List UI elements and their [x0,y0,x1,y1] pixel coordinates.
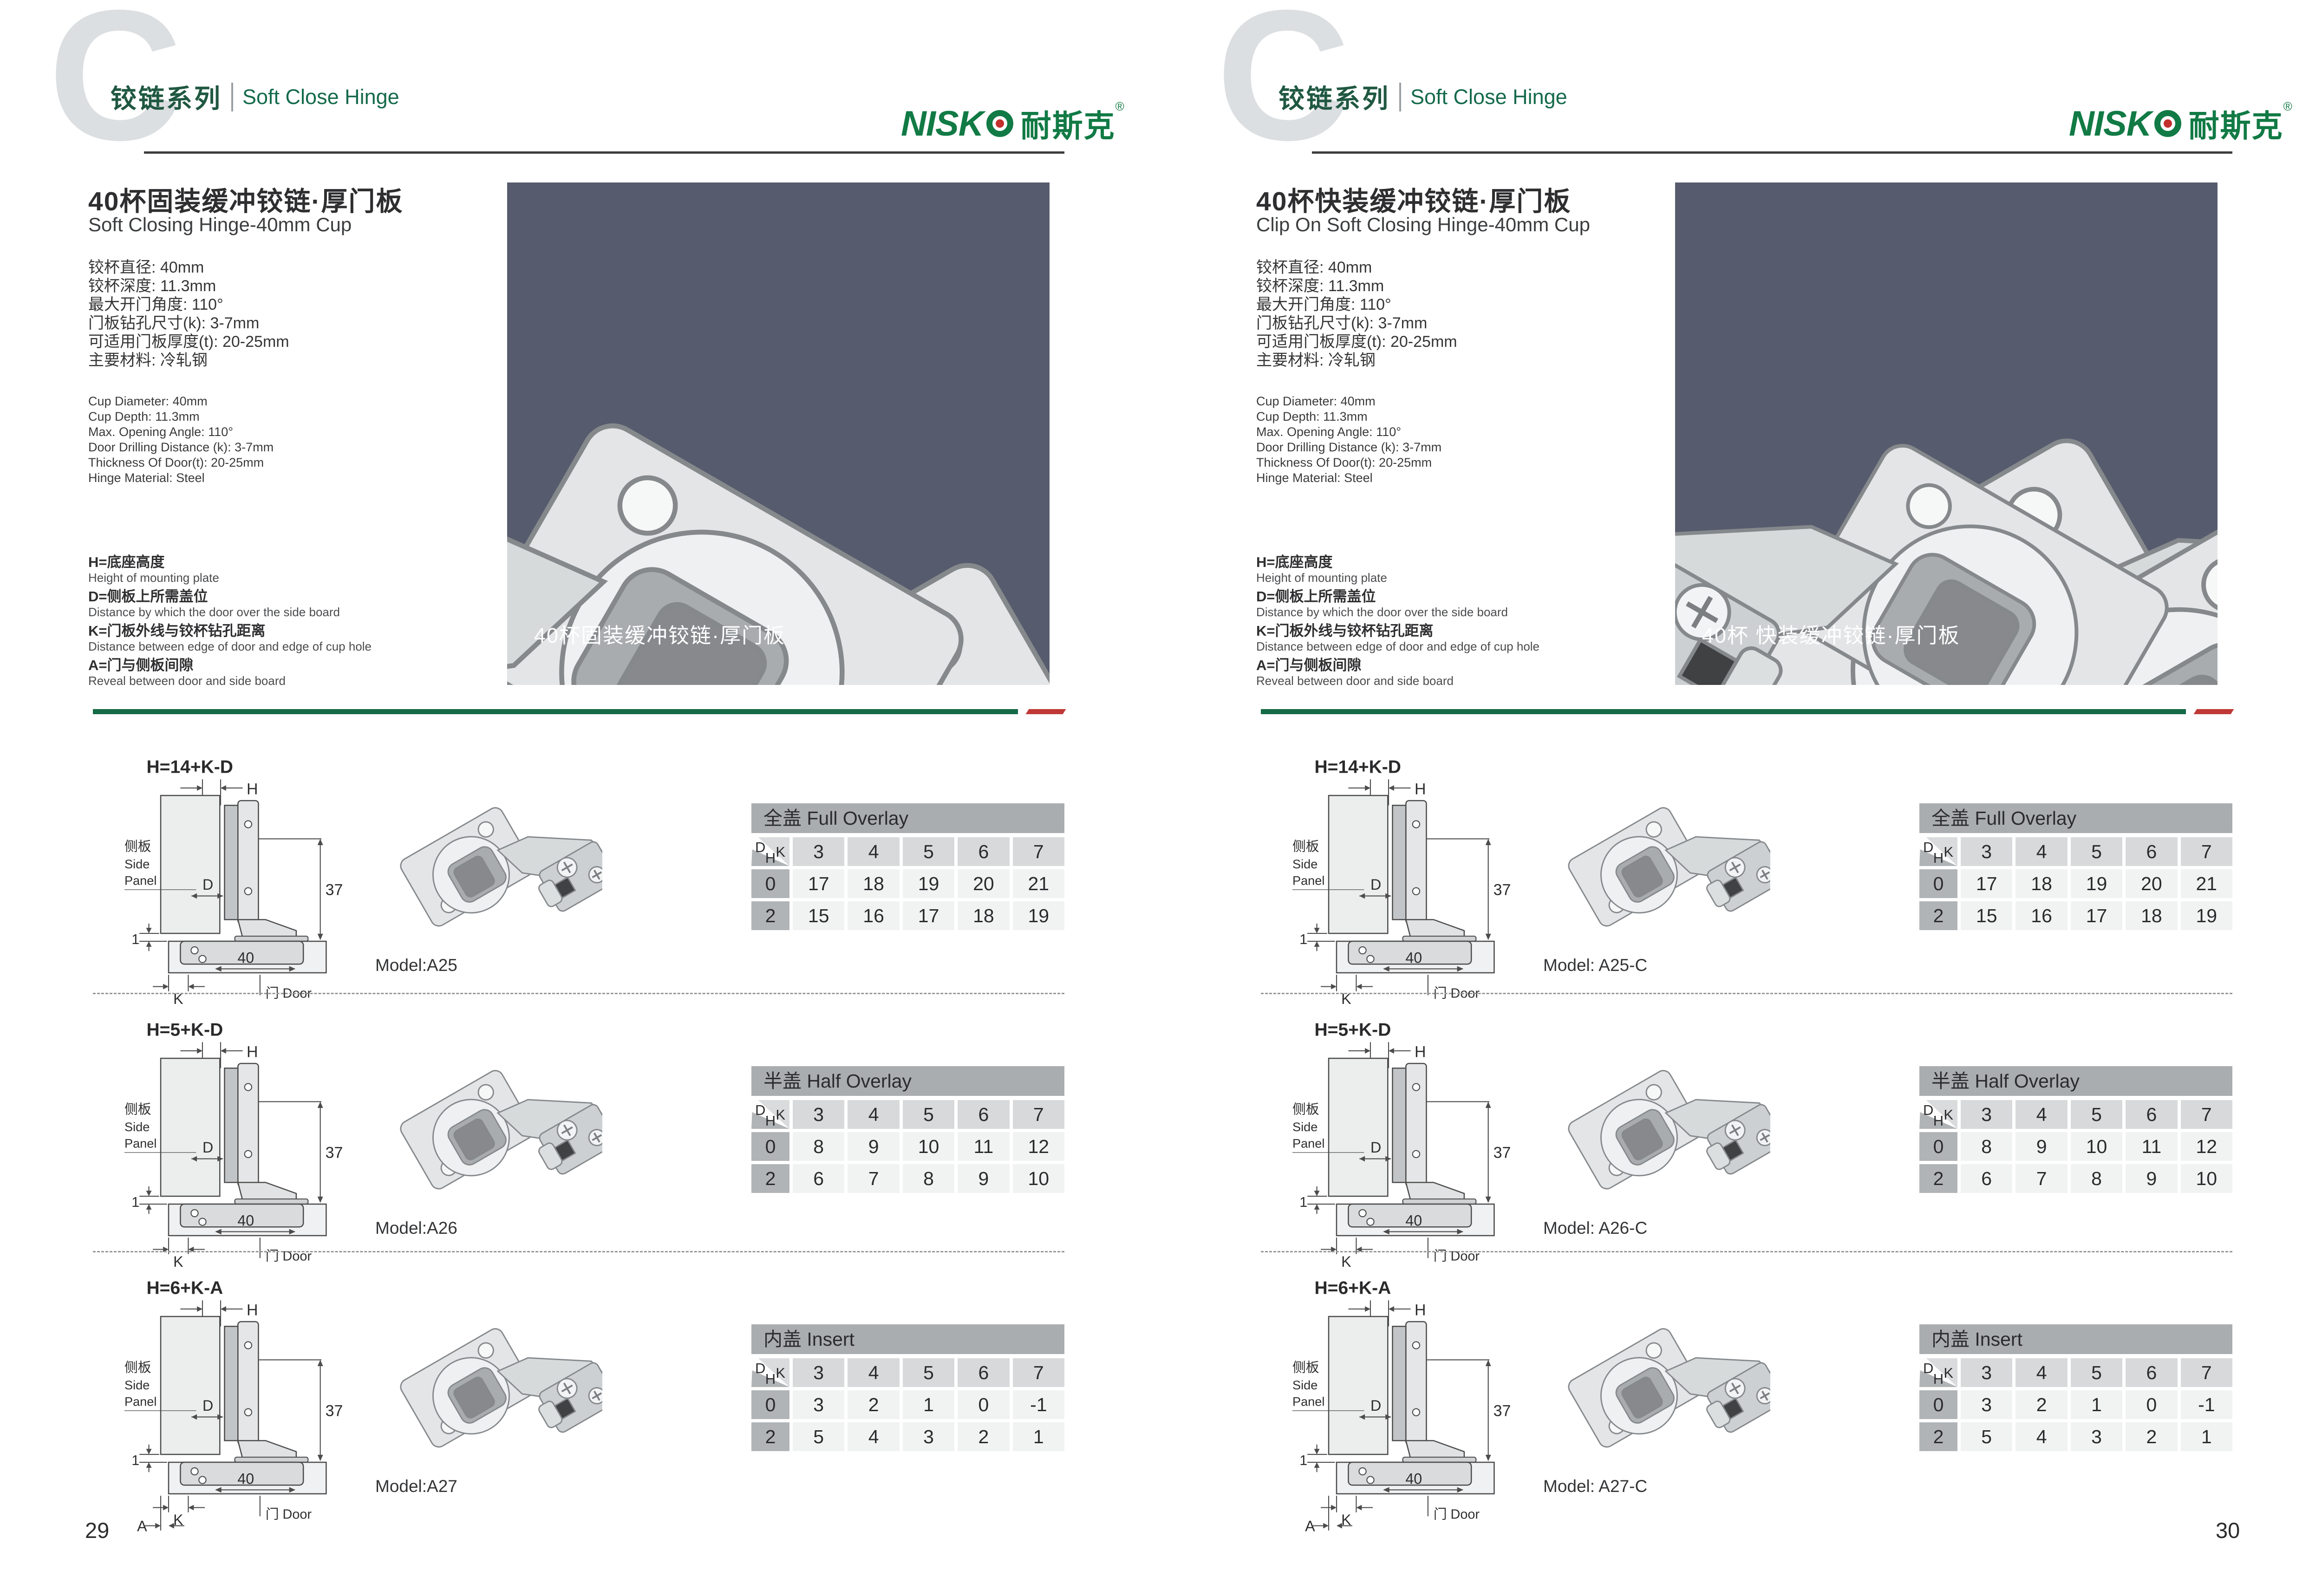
table-k-header: 3 [1961,1100,2012,1129]
table-value-cell: 8 [1961,1132,2012,1161]
overlay-section-insert: H=6+K-A Model:A27 内盖 InsertDKH3456703210… [0,1273,1168,1533]
table-value-cell: 3 [793,1390,844,1419]
hinge-photo-illustration [1675,182,2218,685]
section-divider-accent [2194,709,2234,714]
table-value-cell: 3 [903,1422,954,1451]
spec-line: 门板钻孔尺寸(k): 3-7mm [1256,314,1457,332]
definition-en: Height of mounting plate [1256,571,1539,585]
product-photo: 40杯固装缓冲铰链·厚门板 [507,182,1050,685]
spec-line: Cup Diameter: 40mm [1256,394,1441,409]
table-value-cell: 8 [903,1164,954,1193]
hinge-thumbnail [385,1282,607,1472]
definition-en: Reveal between door and side board [88,674,372,688]
table-k-header: 6 [958,1358,1009,1387]
table-k-header: 5 [2071,1100,2122,1129]
diagram-formula: H=14+K-D [146,757,233,777]
spec-line: 主要材料: 冷轧钢 [88,351,289,370]
series-title-cn: 铰链系列 [1278,78,1390,116]
overlay-section-insert: H=6+K-A Model: A27-C 内盖 InsertDKH3456703… [1168,1273,2322,1533]
series-header: 铰链系列 Soft Close Hinge [111,78,399,116]
table-h-header: 0 [1919,1390,1957,1419]
table-k-header: 7 [2181,1358,2232,1387]
table-value-cell: 7 [2015,1164,2067,1193]
table-value-cell: 17 [903,901,954,930]
table-value-cell: 17 [793,869,844,898]
specs-cn: 铰杯直径: 40mm 铰杯深度: 11.3mm 最大开门角度: 110° 门板钻… [1256,258,1457,370]
table-k-header: 5 [903,1358,954,1387]
definition-en: Distance between edge of door and edge o… [88,639,372,654]
brand-logo: NISK 耐斯克 ® [2069,101,2292,146]
table-value-cell: 5 [1961,1422,2012,1451]
spec-line: 可适用门板厚度(t): 20-25mm [1256,332,1457,351]
spec-line: 铰杯深度: 11.3mm [1256,277,1457,295]
table-k-header: 6 [2126,1100,2177,1129]
overlay-section-half: H=5+K-D Model:A26 半盖 Half OverlayDKH3456… [0,1015,1168,1275]
definition-cn: K=门板外线与铰杯钻孔距离 [88,622,372,639]
overlay-section-half: H=5+K-D Model: A26-C 半盖 Half OverlayDKH3… [1168,1015,2322,1275]
definition-en: Distance between edge of door and edge o… [1256,639,1539,654]
table-corner-cell: DKH [751,1100,789,1129]
diagram-formula: H=6+K-A [1314,1278,1391,1298]
overlay-table-insert: 内盖 InsertDKH3456703210-1254321 [1919,1324,2232,1451]
table-value-cell: 6 [793,1164,844,1193]
table-value-cell: 12 [1013,1132,1064,1161]
product-title-en: Soft Closing Hinge-40mm Cup [88,214,352,236]
installation-diagram: H=6+K-A [1269,1275,1534,1535]
overlay-table-half: 半盖 Half OverlayDKH345670891011122678910 [1919,1066,2232,1193]
installation-diagram: H=14+K-D [1269,754,1534,1014]
table-value-cell: 1 [2071,1390,2122,1419]
page-29: C 铰链系列 Soft Close Hinge NISK 耐斯克 ® 40杯固装… [0,0,1168,1596]
table-h-header: 0 [1919,869,1957,898]
definition-en: Distance by which the door over the side… [1256,605,1539,619]
table-k-header: 7 [2181,1100,2232,1129]
dashed-separator [1261,993,2232,994]
table-corner-cell: DKH [1919,1358,1957,1387]
hinge-thumbnail [1552,761,1775,951]
table-title: 半盖 Half Overlay [751,1066,1064,1096]
table-value-cell: 9 [958,1164,1009,1193]
table-value-cell: 4 [2015,1422,2067,1451]
series-header: 铰链系列 Soft Close Hinge [1278,78,1567,116]
product-title-en: Clip On Soft Closing Hinge-40mm Cup [1256,214,1590,236]
spec-line: Thickness Of Door(t): 20-25mm [88,455,274,470]
installation-diagram: H=6+K-A [101,1275,366,1535]
table-grid: DKH3456703210-1254321 [751,1358,1064,1451]
table-value-cell: 8 [793,1132,844,1161]
table-value-cell: 18 [2015,869,2067,898]
table-title: 半盖 Half Overlay [1919,1066,2232,1096]
spec-line: Door Drilling Distance (k): 3-7mm [1256,440,1441,455]
specs-cn: 铰杯直径: 40mm 铰杯深度: 11.3mm 最大开门角度: 110° 门板钻… [88,258,289,370]
spec-line: 主要材料: 冷轧钢 [1256,351,1457,370]
brand-registered-mark: ® [1115,99,1124,114]
series-divider [1399,83,1401,111]
table-k-header: 4 [2015,837,2067,866]
dimension-definitions: H=底座高度 Height of mounting plate D=侧板上所需盖… [1256,554,1539,691]
table-value-cell: 21 [1013,869,1064,898]
installation-diagram: H=5+K-D [1269,1017,1534,1277]
brand-logo-cn: 耐斯克 [2189,101,2283,146]
table-value-cell: 12 [2181,1132,2232,1161]
page-number: 29 [85,1518,109,1543]
table-value-cell: 17 [1961,869,2012,898]
table-corner-cell: DKH [1919,837,1957,866]
hinge-thumbnail [385,761,607,951]
table-grid: DKH345670171819202121516171819 [1919,837,2232,930]
specs-en: Cup Diameter: 40mm Cup Depth: 11.3mm Max… [88,394,274,486]
dashed-separator [1261,1251,2232,1252]
spec-line: 可适用门板厚度(t): 20-25mm [88,332,289,351]
table-value-cell: 11 [958,1132,1009,1161]
table-value-cell: 4 [848,1422,899,1451]
table-k-header: 5 [903,1100,954,1129]
table-h-header: 2 [751,1422,789,1451]
table-k-header: 4 [848,837,899,866]
overlay-section-full: H=14+K-D Model:A25 全盖 Full OverlayDKH345… [0,752,1168,1012]
table-k-header: 3 [793,1100,844,1129]
dimension-definitions: H=底座高度 Height of mounting plate D=侧板上所需盖… [88,554,372,691]
table-h-header: 0 [1919,1132,1957,1161]
table-grid: DKH345670171819202121516171819 [751,837,1064,930]
photo-caption: 40杯 快装缓冲铰链·厚门板 [1702,619,1960,649]
overlay-table-insert: 内盖 InsertDKH3456703210-1254321 [751,1324,1064,1451]
definition-cn: K=门板外线与铰杯钻孔距离 [1256,622,1539,639]
spec-line: Hinge Material: Steel [88,470,274,486]
table-k-header: 6 [2126,837,2177,866]
header-rule [144,151,1064,154]
table-value-cell: 16 [2015,901,2067,930]
series-title-cn: 铰链系列 [111,78,222,116]
table-value-cell: 15 [1961,901,2012,930]
table-value-cell: 15 [793,901,844,930]
table-value-cell: 3 [1961,1390,2012,1419]
page-number: 30 [2216,1518,2240,1543]
table-value-cell: 7 [848,1164,899,1193]
installation-diagram: H=14+K-D [101,754,366,1014]
table-k-header: 6 [2126,1358,2177,1387]
table-k-header: 4 [848,1100,899,1129]
spec-line: 门板钻孔尺寸(k): 3-7mm [88,314,289,332]
table-value-cell: 9 [848,1132,899,1161]
table-value-cell: 17 [2071,901,2122,930]
table-k-header: 7 [2181,837,2232,866]
hinge-thumbnail [1552,1023,1775,1214]
brand-registered-mark: ® [2283,99,2292,114]
definition-cn: A=门与侧板间隙 [1256,657,1539,674]
diagram-formula: H=5+K-D [146,1020,223,1040]
table-value-cell: 18 [2126,901,2177,930]
diagram-formula: H=6+K-A [146,1278,223,1298]
overlay-table-full: 全盖 Full OverlayDKH3456701718192021215161… [1919,803,2232,930]
spec-line: Door Drilling Distance (k): 3-7mm [88,440,274,455]
spec-line: Cup Depth: 11.3mm [1256,409,1441,424]
table-k-header: 3 [793,1358,844,1387]
table-k-header: 7 [1013,837,1064,866]
definition-en: Height of mounting plate [88,571,372,585]
table-value-cell: 2 [958,1422,1009,1451]
table-k-header: 7 [1013,1358,1064,1387]
table-value-cell: 19 [2181,901,2232,930]
section-divider [1261,709,2186,714]
overlay-section-full: H=14+K-D Model: A25-C 全盖 Full OverlayDKH… [1168,752,2322,1012]
product-title-cn: 40杯快装缓冲铰链·厚门板 [1256,180,1571,218]
installation-diagram: H=5+K-D [101,1017,366,1277]
model-label: Model:A27 [375,1477,457,1496]
diagram-formula: H=14+K-D [1314,757,1401,777]
definition-cn: H=底座高度 [1256,554,1539,571]
table-value-cell: 1 [1013,1422,1064,1451]
table-h-header: 0 [751,1132,789,1161]
brand-logo-o-icon [2154,110,2181,137]
table-value-cell: 3 [2071,1422,2122,1451]
definition-cn: D=侧板上所需盖位 [1256,588,1539,605]
product-photo: 40杯 快装缓冲铰链·厚门板 [1675,182,2218,685]
brand-logo-cn: 耐斯克 [1021,101,1115,146]
definition-cn: H=底座高度 [88,554,372,571]
spec-line: Max. Opening Angle: 110° [1256,424,1441,440]
product-title-cn: 40杯固装缓冲铰链·厚门板 [88,180,403,218]
table-title: 全盖 Full Overlay [1919,803,2232,833]
table-h-header: 2 [751,1164,789,1193]
table-k-header: 3 [1961,837,2012,866]
table-grid: DKH345670891011122678910 [751,1100,1064,1193]
table-value-cell: 10 [2071,1132,2122,1161]
brand-logo-o-icon [986,110,1013,137]
model-label: Model: A25-C [1543,956,1647,975]
spec-line: 最大开门角度: 110° [88,295,289,314]
definition-cn: A=门与侧板间隙 [88,657,372,674]
series-title-en: Soft Close Hinge [1410,85,1567,109]
series-divider [231,83,233,111]
table-value-cell: 0 [2126,1390,2177,1419]
brand-logo-latin: NISK [2069,104,2152,144]
section-divider-accent [1026,709,1066,714]
table-h-header: 2 [1919,901,1957,930]
page-30: C 铰链系列 Soft Close Hinge NISK 耐斯克 ® 40杯快装… [1168,0,2322,1596]
table-h-header: 2 [1919,1164,1957,1193]
table-value-cell: 19 [2071,869,2122,898]
spec-line: Hinge Material: Steel [1256,470,1441,486]
catalog-spread: C 铰链系列 Soft Close Hinge NISK 耐斯克 ® 40杯固装… [0,0,2322,1596]
spec-line: Cup Diameter: 40mm [88,394,274,409]
table-value-cell: 2 [848,1390,899,1419]
overlay-table-half: 半盖 Half OverlayDKH345670891011122678910 [751,1066,1064,1193]
table-k-header: 4 [2015,1100,2067,1129]
table-value-cell: 5 [793,1422,844,1451]
table-value-cell: 0 [958,1390,1009,1419]
table-value-cell: 19 [903,869,954,898]
table-k-header: 6 [958,837,1009,866]
spec-line: Max. Opening Angle: 110° [88,424,274,440]
table-value-cell: 1 [903,1390,954,1419]
section-divider [93,709,1018,714]
table-value-cell: 11 [2126,1132,2177,1161]
model-label: Model: A27-C [1543,1477,1647,1496]
table-value-cell: -1 [2181,1390,2232,1419]
table-value-cell: 10 [2181,1164,2232,1193]
table-k-header: 3 [793,837,844,866]
model-label: Model:A26 [375,1218,457,1238]
table-value-cell: 2 [2015,1390,2067,1419]
table-value-cell: 18 [848,869,899,898]
table-corner-cell: DKH [751,1358,789,1387]
table-grid: DKH345670891011122678910 [1919,1100,2232,1193]
diagram-formula: H=5+K-D [1314,1020,1391,1040]
table-value-cell: 9 [2126,1164,2177,1193]
table-value-cell: 20 [958,869,1009,898]
brand-logo: NISK 耐斯克 ® [901,101,1124,146]
brand-logo-latin: NISK [901,104,984,144]
table-k-header: 4 [848,1358,899,1387]
table-h-header: 2 [751,901,789,930]
table-value-cell: 1 [2181,1422,2232,1451]
dashed-separator [93,993,1064,994]
definition-en: Distance by which the door over the side… [88,605,372,619]
table-value-cell: -1 [1013,1390,1064,1419]
spec-line: 铰杯直径: 40mm [1256,258,1457,277]
series-title-en: Soft Close Hinge [242,85,399,109]
table-title: 内盖 Insert [1919,1324,2232,1354]
hinge-thumbnail [1552,1282,1775,1472]
definition-cn: D=侧板上所需盖位 [88,588,372,605]
spec-line: 铰杯直径: 40mm [88,258,289,277]
table-k-header: 6 [958,1100,1009,1129]
table-value-cell: 10 [903,1132,954,1161]
specs-en: Cup Diameter: 40mm Cup Depth: 11.3mm Max… [1256,394,1441,486]
overlay-table-full: 全盖 Full OverlayDKH3456701718192021215161… [751,803,1064,930]
table-grid: DKH3456703210-1254321 [1919,1358,2232,1451]
hinge-thumbnail [385,1023,607,1214]
table-k-header: 4 [2015,1358,2067,1387]
hinge-photo-illustration [507,182,1050,685]
table-value-cell: 2 [2126,1422,2177,1451]
table-value-cell: 16 [848,901,899,930]
table-k-header: 5 [2071,1358,2122,1387]
table-value-cell: 8 [2071,1164,2122,1193]
table-k-header: 3 [1961,1358,2012,1387]
table-value-cell: 21 [2181,869,2232,898]
table-corner-cell: DKH [751,837,789,866]
model-label: Model:A25 [375,956,457,975]
table-k-header: 5 [2071,837,2122,866]
header-rule [1312,151,2232,154]
table-value-cell: 9 [2015,1132,2067,1161]
table-h-header: 0 [751,1390,789,1419]
table-value-cell: 18 [958,901,1009,930]
spec-line: Thickness Of Door(t): 20-25mm [1256,455,1441,470]
definition-en: Reveal between door and side board [1256,674,1539,688]
spec-line: 最大开门角度: 110° [1256,295,1457,314]
table-h-header: 0 [751,869,789,898]
model-label: Model: A26-C [1543,1218,1647,1238]
table-h-header: 2 [1919,1422,1957,1451]
table-value-cell: 19 [1013,901,1064,930]
table-k-header: 7 [1013,1100,1064,1129]
table-value-cell: 10 [1013,1164,1064,1193]
photo-caption: 40杯固装缓冲铰链·厚门板 [534,619,785,649]
table-title: 全盖 Full Overlay [751,803,1064,833]
table-title: 内盖 Insert [751,1324,1064,1354]
spec-line: 铰杯深度: 11.3mm [88,277,289,295]
spec-line: Cup Depth: 11.3mm [88,409,274,424]
table-value-cell: 6 [1961,1164,2012,1193]
table-value-cell: 20 [2126,869,2177,898]
table-corner-cell: DKH [1919,1100,1957,1129]
dashed-separator [93,1251,1064,1252]
table-k-header: 5 [903,837,954,866]
